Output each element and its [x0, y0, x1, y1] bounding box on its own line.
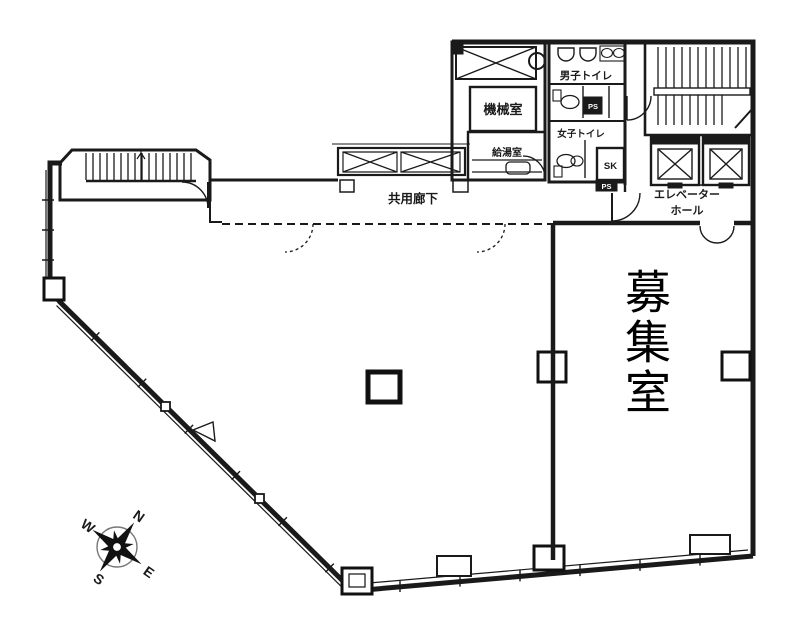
counter-unit-x — [343, 152, 397, 172]
ps-upper-label: PS — [588, 102, 598, 111]
corridor-label: 共用廊下 — [388, 191, 439, 206]
toilet-tank — [554, 166, 562, 177]
compass-rose: N W S E — [78, 507, 157, 589]
toilet-bowl — [557, 155, 575, 168]
womens-toilet-label: 女子トイレ — [557, 128, 605, 140]
window-line-diagonal — [57, 306, 350, 595]
elevators — [651, 137, 749, 188]
mullion-post — [255, 494, 264, 503]
floorplan-page: 機械室 男子トイレ 女子トイレ 給湯室 共用廊下 エレベーター ホール SK P… — [0, 0, 787, 633]
machine-room-label: 機械室 — [483, 102, 522, 117]
duct-shaft-x — [456, 47, 536, 79]
compass-s-label: S — [91, 570, 108, 588]
toilet-bowl — [561, 96, 579, 109]
pillar-left-bend — [44, 278, 64, 300]
mens-toilet-label: 男子トイレ — [560, 70, 613, 82]
door-arc — [627, 96, 651, 120]
door-arc — [523, 156, 545, 178]
kitchenette-counter — [472, 160, 542, 172]
pillar-right-wall — [722, 352, 750, 380]
elevator-2-top — [703, 137, 749, 144]
window-bay-bottom — [437, 556, 471, 576]
stair-treads — [658, 47, 746, 88]
corridor-step — [210, 200, 222, 222]
ps-lower-label: PS — [601, 182, 611, 191]
sk-label: SK — [604, 161, 617, 172]
toilet-block — [549, 42, 651, 191]
toilet-bowl — [571, 156, 583, 166]
door-arc — [182, 182, 208, 208]
elevator-door-mark — [719, 183, 733, 188]
pillar-corner-core — [349, 574, 365, 587]
vacancy-room-label: 募集室 — [612, 268, 670, 468]
pillar-bottom-center — [534, 546, 564, 570]
toilet-tank — [553, 90, 561, 101]
door-arc-dashed — [477, 224, 505, 252]
stairwell-upper-right — [645, 42, 753, 135]
urinals — [558, 48, 596, 61]
window-bay-bottom-right — [690, 535, 730, 554]
elevator-door-mark — [668, 183, 682, 188]
wall-jog — [340, 180, 354, 192]
door-arc-dashed — [285, 224, 313, 252]
door-arc — [700, 226, 717, 243]
kitchenette-label: 給湯室 — [492, 146, 522, 159]
elevator-1-x — [658, 149, 692, 179]
compass-n-label: N — [130, 507, 147, 526]
wall-jog — [453, 180, 468, 192]
sink-basin — [614, 49, 625, 58]
compass-e-label: E — [141, 563, 158, 581]
stair-direction-arrow — [137, 150, 145, 181]
sink-basin — [602, 49, 613, 58]
elevator-hall-label-1: エレベーター — [654, 188, 720, 201]
stairwell-upper-left — [60, 150, 210, 208]
elevator-2-x — [710, 149, 742, 179]
compass-hub — [113, 543, 122, 552]
compass-w-label: W — [78, 516, 99, 537]
stair-chamfer — [735, 108, 753, 128]
stair-landing-rail — [654, 88, 750, 95]
pillar-free-standing — [368, 372, 400, 402]
door-arc — [612, 193, 640, 221]
elevator-1-top — [651, 137, 699, 144]
mullion-post — [161, 402, 170, 411]
wall-top-right — [452, 42, 753, 556]
door-arc — [717, 226, 734, 243]
stair-treads — [658, 95, 722, 125]
wall-corner-block — [452, 42, 463, 54]
elevator-hall-label-2: ホール — [671, 204, 704, 217]
